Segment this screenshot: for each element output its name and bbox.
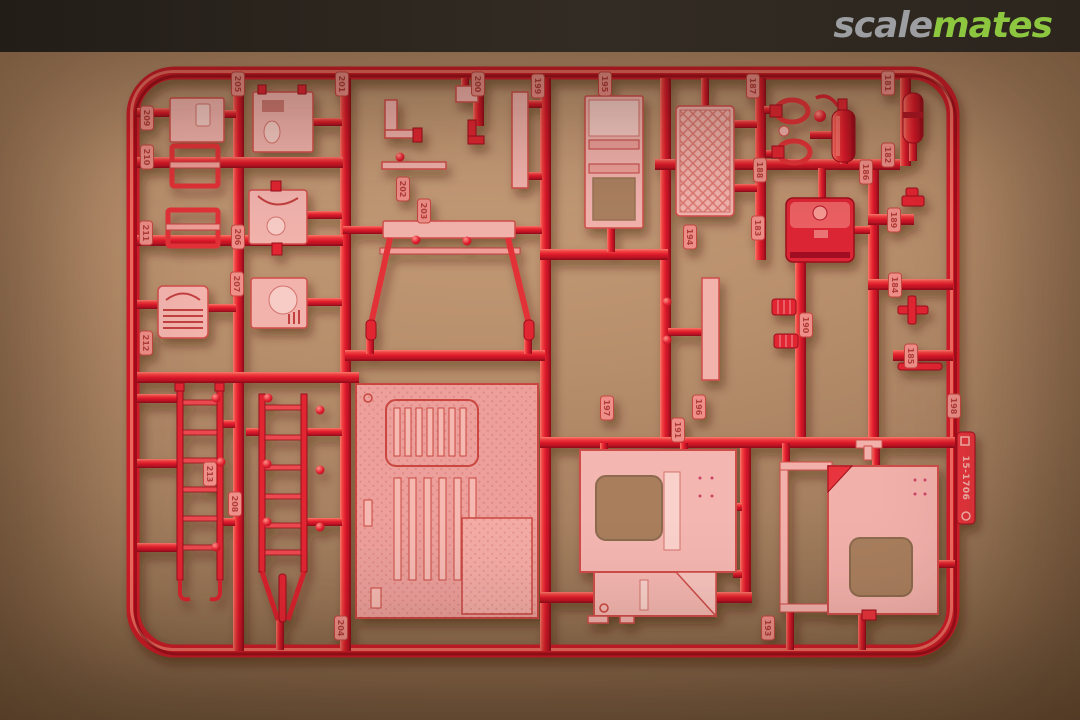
screenshot: scalemates: [0, 0, 1080, 720]
part-number-tab: 189: [888, 208, 901, 232]
small-bottom-parts: [588, 616, 634, 623]
part-number-tab: 195: [599, 72, 612, 96]
scalemates-logo: scalemates: [833, 8, 1080, 44]
part-number-text: 211: [141, 225, 150, 242]
mesh-panel-part: [676, 106, 734, 216]
part-number-text: 205: [233, 76, 242, 93]
fuel-tank-part: [786, 198, 854, 262]
part-number-tab: 202: [397, 177, 410, 201]
part-number-tab: 203: [418, 199, 431, 223]
part-number-tab: 200: [472, 72, 485, 96]
part-number-text: 196: [694, 399, 703, 416]
ladder-part-b: [259, 394, 307, 622]
part-number-tab: 182: [882, 143, 895, 167]
part-number-text: 212: [141, 335, 150, 352]
part-number-tab: 184: [889, 273, 902, 297]
part-number-text: 209: [142, 110, 151, 127]
part-number-text: 198: [949, 398, 958, 415]
part-number-text: 203: [419, 203, 428, 220]
part-number-tab: 196: [693, 395, 706, 419]
part-number-tab: 185: [905, 344, 918, 368]
winch-part: [251, 278, 307, 328]
coil-parts: [772, 299, 798, 348]
part-number-tab: 213: [204, 462, 217, 486]
part-number-tab: 190: [800, 313, 813, 337]
part-number-text: 194: [685, 229, 694, 246]
part-number-text: 190: [801, 317, 810, 334]
part-number-tab: 210: [141, 145, 154, 169]
part-number-tab: 198: [948, 394, 961, 418]
fuse-box-part: [170, 98, 224, 142]
roller-door-panel-part: [356, 384, 538, 618]
pipe-clamp-part-a: [770, 100, 808, 136]
ladder-part-a: [175, 383, 224, 599]
part-number-text: 204: [336, 620, 345, 637]
part-number-text: 199: [533, 78, 542, 95]
part-number-text: 206: [233, 229, 242, 246]
cylinder-part: [903, 93, 923, 143]
sprue: 1811821831841851861871881891901911931941…: [132, 71, 976, 654]
part-number-tab: 187: [747, 74, 760, 98]
part-number-text: 207: [232, 276, 241, 293]
engine-block-part: [249, 181, 307, 255]
part-number-text: 213: [205, 466, 214, 483]
windshield-frame-part: [366, 221, 534, 340]
part-number-text: 183: [753, 220, 762, 237]
logo-text-mates: mates: [932, 5, 1052, 46]
part-number-text: 181: [883, 75, 892, 92]
hook-bracket-part: [385, 100, 422, 142]
truck-bed-part: [585, 96, 643, 228]
part-number-text: 210: [142, 149, 151, 166]
part-number-tab: 197: [601, 396, 614, 420]
part-number-tab: 194: [684, 225, 697, 249]
plank-part-b: [702, 278, 719, 380]
part-number-tab: 205: [232, 72, 245, 96]
part-number-text: 197: [602, 400, 611, 417]
part-number-text: 186: [861, 164, 870, 181]
step-panel-part: [253, 85, 313, 152]
photo-area: 1811821831841851861871881891901911931941…: [0, 52, 1080, 720]
part-number-tab: 206: [232, 225, 245, 249]
plank-part-a: [512, 92, 528, 188]
cab-side-panel-left: [580, 450, 736, 616]
watermark-bar: scalemates: [0, 0, 1080, 53]
cab-side-panel-right: [780, 440, 938, 620]
part-number-text: 188: [755, 162, 764, 179]
fire-extinguisher-part: [814, 96, 855, 162]
part-number-text: 191: [673, 422, 682, 439]
radiator-grille-part: [158, 286, 208, 338]
part-number-tab: 204: [335, 616, 348, 640]
part-number-tab: 183: [752, 216, 765, 240]
part-number-text: 187: [748, 78, 757, 95]
part-number-tab: 208: [229, 492, 242, 516]
bracket-part-a: [170, 146, 220, 186]
part-number-text: 189: [889, 212, 898, 229]
part-number-text: 182: [883, 147, 892, 164]
thin-bar-part: [382, 162, 446, 169]
part-number-tab: 209: [141, 106, 154, 130]
sprue-svg: 1811821831841851861871881891901911931941…: [0, 52, 1080, 720]
mold-label-text: 15-1706: [960, 456, 970, 501]
part-number-tab: 186: [860, 160, 873, 184]
part-number-tab: 207: [231, 272, 244, 296]
mold-label-tab: 15-1706: [957, 432, 975, 524]
part-number-text: 208: [230, 496, 239, 513]
part-number-text: 185: [906, 348, 915, 365]
part-number-tab: 181: [882, 71, 895, 95]
part-number-tab: 211: [140, 221, 153, 245]
part-number-tab: 212: [140, 331, 153, 355]
part-number-text: 184: [890, 277, 899, 294]
part-number-text: 193: [763, 620, 772, 637]
part-number-text: 195: [600, 76, 609, 93]
part-number-text: 201: [337, 76, 346, 93]
part-number-tab: 201: [336, 72, 349, 96]
part-number-tab: 199: [532, 74, 545, 98]
part-number-tab: 193: [762, 616, 775, 640]
part-number-tab: 188: [754, 158, 767, 182]
part-number-text: 200: [473, 76, 482, 93]
part-number-tab: 191: [672, 418, 685, 442]
logo-text-scale: scale: [833, 5, 932, 46]
part-number-text: 202: [398, 181, 407, 198]
